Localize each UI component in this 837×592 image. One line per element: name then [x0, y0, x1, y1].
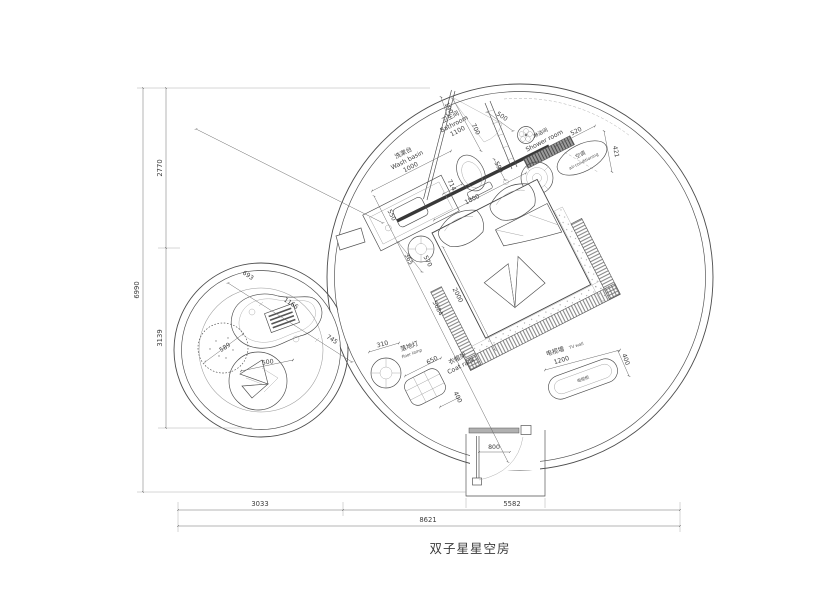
dim-overall-width: 8621: [419, 516, 436, 524]
dim-basin-depth: 550: [386, 208, 398, 222]
tv-wall-label-en: TV wall: [567, 341, 584, 350]
floor-plan-svg: 电视柜: [0, 0, 837, 592]
entrance-vestibule: [466, 426, 545, 497]
dim-upper-height: 2770: [156, 159, 164, 176]
dim-coat-d: 400: [452, 390, 464, 404]
tv-cabinet-label: 电视柜: [576, 374, 590, 385]
dim-head-wall: 1800: [464, 193, 481, 206]
dim-bath-span: 700: [470, 122, 482, 136]
dim-lounge-c: 745: [325, 334, 339, 346]
kidney-table: [231, 294, 322, 348]
lounge-room-wall: [174, 263, 348, 437]
door-hinge-block: [521, 426, 531, 435]
dim-lounge-a: 693: [241, 270, 255, 282]
lounge-rug-circle: [199, 288, 323, 412]
door-stop-block: [473, 478, 482, 485]
dim-coat-w: 650: [425, 355, 439, 367]
dim-tv-w: 1200: [553, 355, 570, 366]
dim-entry-door: 800: [488, 444, 500, 451]
shower-glass-dashed: [504, 98, 630, 136]
dim-lamp-d: 310: [376, 340, 389, 350]
bed-platform-group: [404, 164, 620, 371]
dim-ac-gap: 421: [611, 145, 620, 158]
coat-rack: [402, 366, 449, 408]
drawing-title: 双子星星空房: [429, 541, 510, 556]
floor-plan-page: 电视柜: [0, 0, 837, 592]
dim-table-d: 365: [403, 252, 415, 266]
floor-lamp-icon: [371, 358, 401, 388]
dim-overall-height: 6990: [133, 281, 141, 298]
dim-tv-d: 400: [620, 353, 631, 367]
dim-chair-d: 500: [261, 358, 274, 367]
dim-bottom-right: 5582: [503, 500, 520, 508]
lounge-chair: [229, 352, 287, 410]
dim-lower-height: 3139: [156, 329, 164, 346]
entry-door-leaf: [477, 436, 480, 478]
dim-bottom-left: 3033: [251, 500, 268, 508]
entry-door-swing-arc: [479, 437, 523, 480]
dim-shower-door: 500: [495, 111, 509, 123]
entry-wall-bar: [469, 428, 519, 433]
dim-toilet-gap: 714: [446, 178, 458, 192]
